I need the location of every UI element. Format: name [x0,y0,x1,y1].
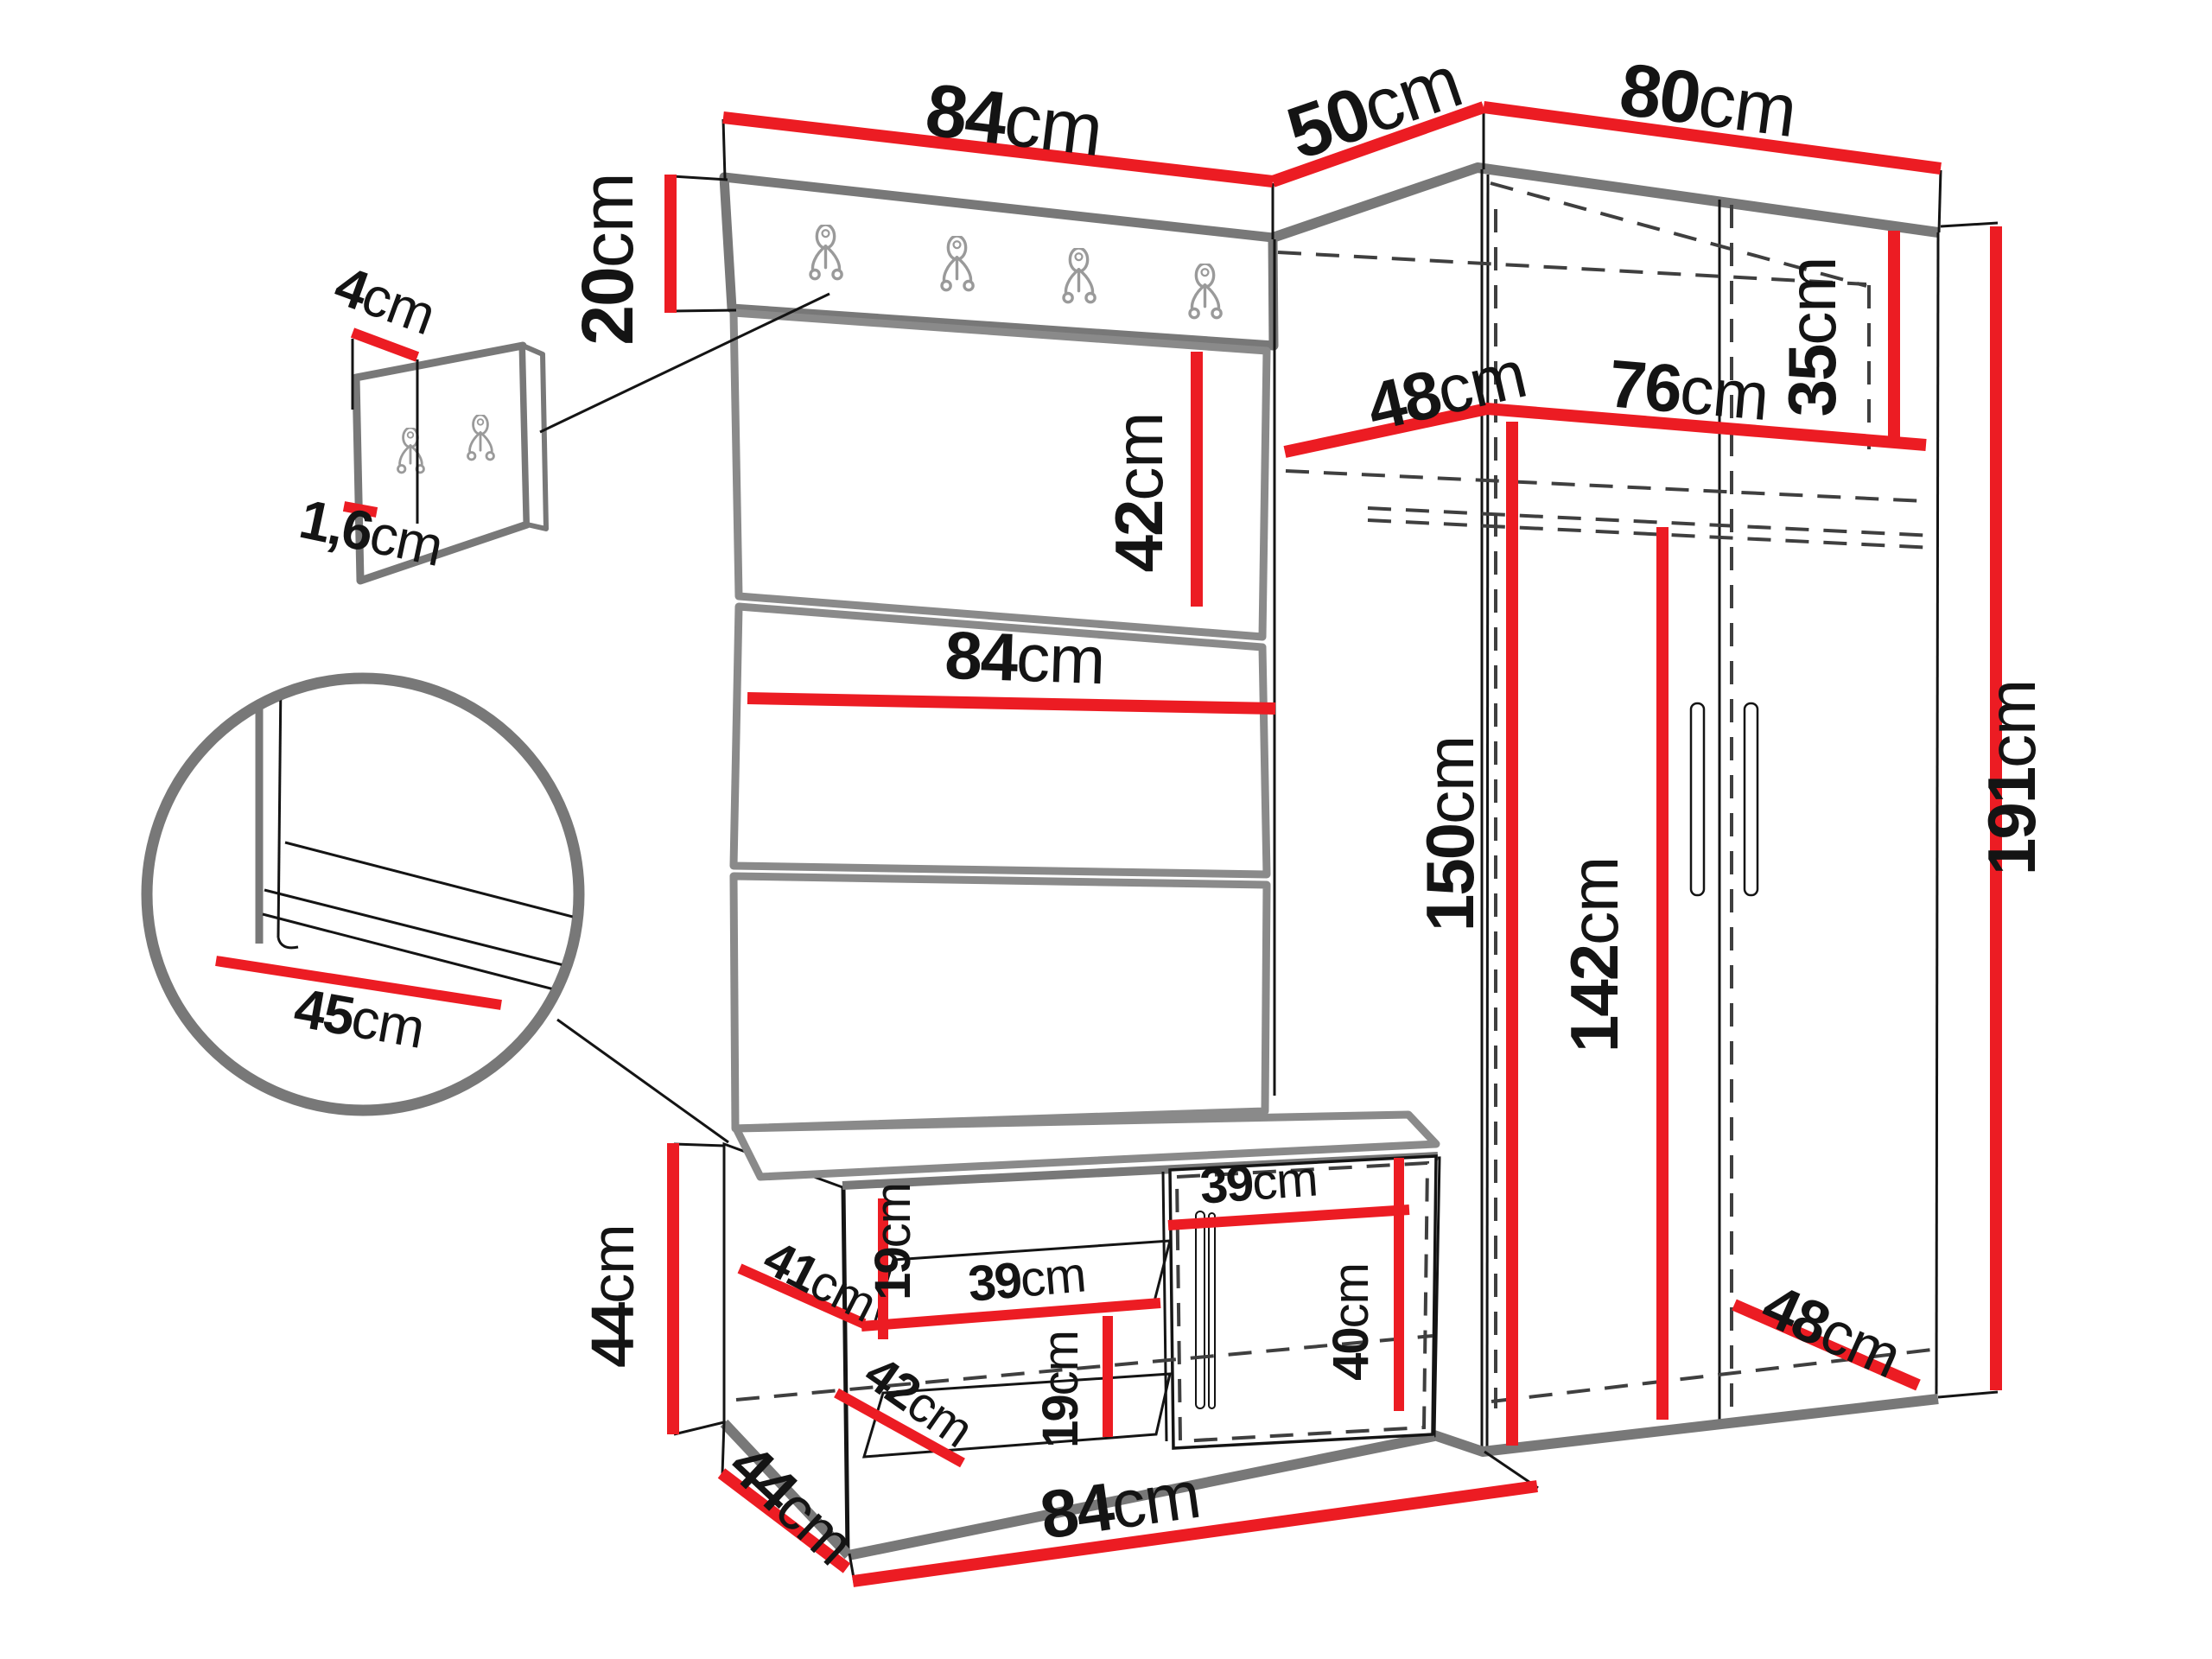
dim-20-left: 20cm [567,173,648,345]
dim-44-left: 44cm [579,1224,646,1367]
dim-39-shelf: 39cm [966,1246,1088,1313]
dim-40-door: 40cm [1323,1263,1379,1381]
dim-142-int: 142cm [1556,857,1632,1052]
upholstered-panels [734,313,1267,1128]
dim-19-a: 19cm [865,1183,921,1300]
dim-191-height: 191cm [1974,680,2050,875]
dim-80-top: 80cm [1615,48,1801,153]
hanging-rod-line [1368,520,1934,548]
circle-detail-leader [557,1020,728,1142]
door-handle-icon [1745,703,1758,895]
door-handle-icon [1691,703,1704,895]
dim-19-b: 19cm [1033,1331,1089,1448]
dim-4-panel: 4cm [327,254,442,347]
dim-42-panel: 42cm [1101,413,1177,573]
dim-48-bottom: 48cm [1752,1271,1910,1390]
dim-76-rod: 76cm [1605,345,1771,435]
dim-150-int: 150cm [1412,736,1488,931]
door-handle-icon [1209,1213,1215,1408]
hanging-rod-line [1368,508,1934,536]
dim-50-top: 50cm [1277,40,1471,175]
diagram-canvas: 84cm50cm80cm20cm4cm1,6cm42cm48cm76cm35cm… [0,0,2212,1659]
dim-35-shelf: 35cm [1774,257,1850,417]
dim-39-door: 39cm [1198,1150,1319,1214]
furniture-dimension-diagram: 84cm50cm80cm20cm4cm1,6cm42cm48cm76cm35cm… [0,0,2212,1659]
door-handle-icon [1196,1211,1205,1408]
dim-84-top: 84cm [921,68,1106,172]
dim-84-mid: 84cm [944,617,1106,698]
